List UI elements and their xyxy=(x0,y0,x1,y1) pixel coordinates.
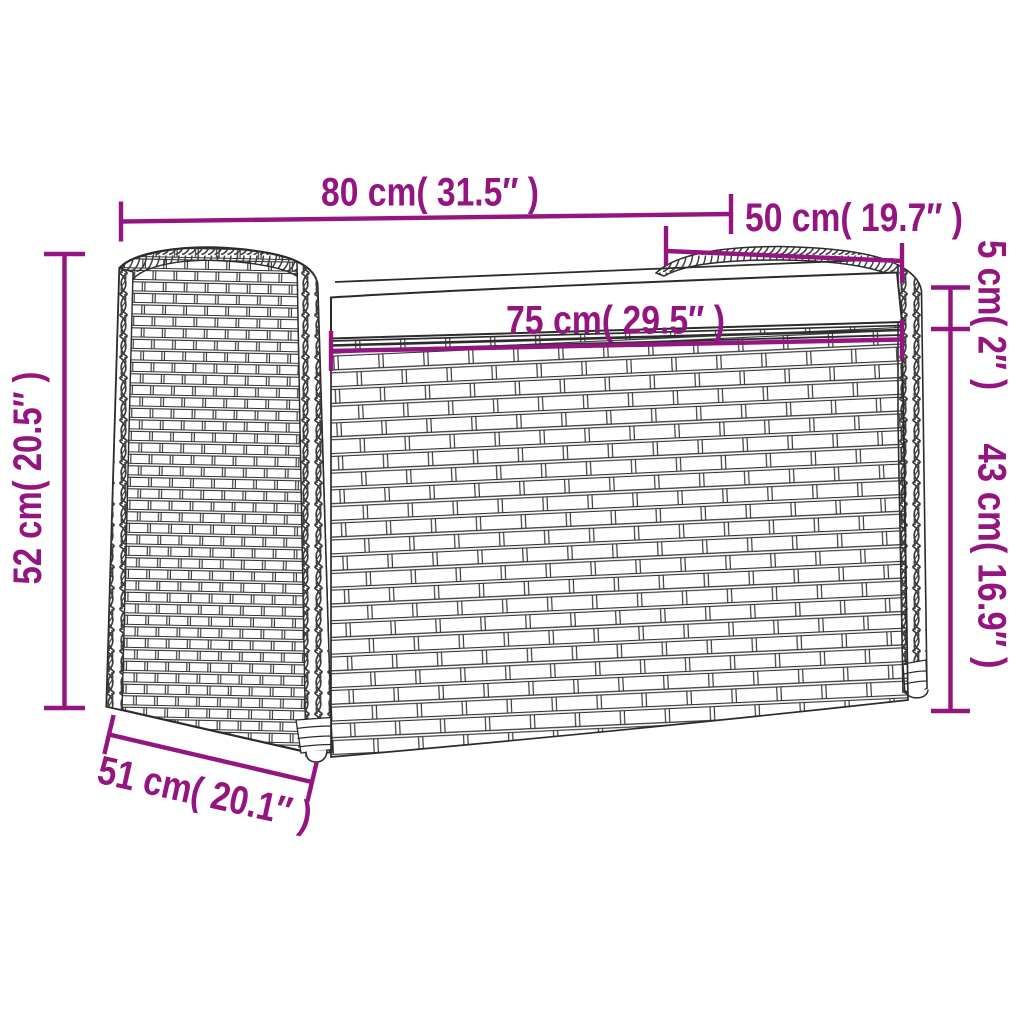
svg-text:52 cm( 20.5″ ): 52 cm( 20.5″ ) xyxy=(6,372,50,585)
svg-text:50 cm( 19.7″ ): 50 cm( 19.7″ ) xyxy=(745,196,963,240)
svg-text:43 cm( 16.9″ ): 43 cm( 16.9″ ) xyxy=(970,444,1014,669)
svg-text:75 cm( 29.5″ ): 75 cm( 29.5″ ) xyxy=(506,299,725,343)
svg-text:5 cm( 2″ ): 5 cm( 2″ ) xyxy=(970,240,1014,390)
svg-text:80 cm( 31.5″ ): 80 cm( 31.5″ ) xyxy=(321,171,539,215)
